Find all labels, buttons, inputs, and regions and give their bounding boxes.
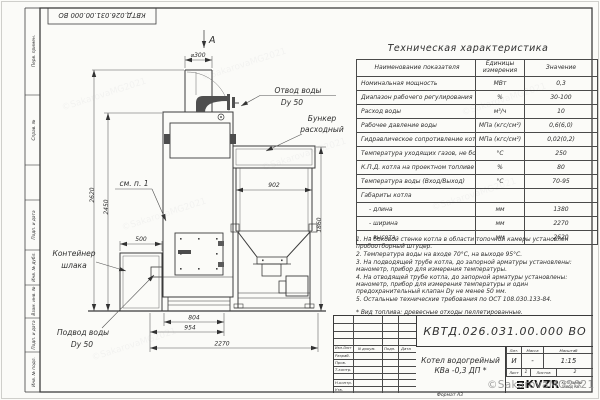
col-izm-list: Изм.Лист [335,347,352,350]
dim-954: 954 [184,325,196,332]
grid-line [334,331,416,332]
strip-label: Взам. инв. № [31,286,37,316]
spec-unit [476,189,525,203]
spec-value: 10 [525,105,598,119]
spec-name: - длина [357,203,476,217]
dim-1860: 1860 [316,217,323,232]
product-name-line2: КВа -0,3 ДП * [416,366,505,376]
spec-value: 2270 [525,217,598,231]
row-prov: Пров. [335,361,346,365]
header-value: Значение [525,60,598,77]
mass-header: Масса [521,347,543,354]
table-row: Расход водым³/ч10 [357,105,598,119]
label-hopper: Бункер [308,114,337,123]
spec-unit: МВт [476,77,525,91]
lit-header: Лит. [506,347,521,354]
spec-unit: % [476,161,525,175]
spec-unit: мм [476,217,525,231]
view-a-marker: A [204,30,216,48]
sheets-value: 2 [556,369,593,377]
note-line: 5. Остальные технические требования по О… [356,297,586,304]
spec-unit: МПа (кгс/см²) [476,119,525,133]
label-slag: Контейнер [53,249,96,258]
label-slag-2: шлака [61,261,87,270]
strip-label: Подп. и дата [31,210,37,240]
table-row: - длинамм1380 [357,203,598,217]
dim-chimney-dia: ⌀300 [190,52,205,59]
header-name: Наименование показателя [357,60,476,77]
spec-name: Температура уходящих газов, не более [357,147,476,161]
label-water-inlet-dn: Dу 50 [71,340,93,349]
dim-2450: 2450 [103,199,110,214]
table-row: Температура уходящих газов, не более°С25… [357,147,598,161]
table-row: Диапазон рабочего регулирования%30-100 [357,91,598,105]
lit-value: И [506,354,521,369]
dim-902: 902 [268,182,280,189]
bunker-outline [231,146,317,308]
boiler-outline [151,70,236,311]
spec-name: Диапазон рабочего регулирования [357,91,476,105]
spec-unit: МПа (кгс/см²) [476,133,525,147]
spec-name: Рабочее давление воды [357,119,476,133]
dim-2270: 2270 [214,341,229,348]
row-razrab: Разраб. [335,354,350,358]
spec-name: - ширина [357,217,476,231]
row-utv: Утв. [335,388,343,392]
sheets-label: Листов [530,369,556,377]
view-a-label: A [208,35,216,46]
spec-value [525,189,598,203]
strip-label: Инв. № дубл. [31,252,37,281]
left-strip-labels: Перв. примен. Справ. № Подп. и дата Инв.… [31,35,37,387]
product-name-line1: Котел водогрейный [416,356,505,366]
strip-label: Справ. № [31,119,37,140]
spec-value: 1380 [525,203,598,217]
scale-header: Масштаб [543,347,593,354]
col-data: Дата [401,347,411,351]
spec-name: Габариты котла [357,189,476,203]
grid-line [334,338,416,339]
note-line: 2. Температура воды на входе 70°С, на вы… [356,252,586,259]
grid-line [334,386,416,387]
spec-value: 80 [525,161,598,175]
row-tkontr: Т.контр. [335,368,351,372]
label-water-inlet: Подвод воды [57,328,109,337]
grid-line [382,316,383,393]
drawing-designation: КВТД.026.031.00.000 ВО [416,316,593,347]
header-units: Единицы измерения [476,60,525,77]
leader-labels: Отвод воды Dу 50 Бункер расходный см. п.… [53,86,344,349]
spec-value: 0,6(6,0) [525,119,598,133]
scale-value: 1:15 [543,354,593,369]
tech-table-title: Техническая характеристика [356,43,580,54]
col-podp: Подп. [384,347,396,351]
format-label: Формат А3 [410,393,490,398]
spec-name: Номинальная мощность [357,77,476,91]
spec-value: 0,02(0,2) [525,133,598,147]
table-row: Габариты котла [357,189,598,203]
water-outlet-nozzle [196,94,239,112]
strip-label: Подп. и дата [31,320,37,350]
spec-unit: % [476,91,525,105]
col-dokum: N докум. [358,347,376,351]
row-nkontr: Н.контр. [335,381,352,385]
spec-name: Температура воды (Вход/Выход) [357,175,476,189]
top-stamp-designation: КВТД.026.031.00.000 ВО [58,11,146,19]
table-row: Номинальная мощностьМВт0,3 [357,77,598,91]
spec-name: Расход воды [357,105,476,119]
spec-value: 0,3 [525,77,598,91]
dim-500: 500 [135,236,147,243]
spec-unit: мм [476,203,525,217]
spec-name: К.П.Д. котла на проектном топливе [357,161,476,175]
grid-line [334,323,416,324]
label-water-outlet: Отвод воды [275,86,322,95]
sheet-value: 1 [521,369,530,377]
table-row: К.П.Д. котла на проектном топливе%80 [357,161,598,175]
technical-notes: 1. На боковой стенке котла в области топ… [356,237,586,318]
note-line: 3. На подводящей трубе котла, до запорно… [356,260,586,274]
table-header-row: Наименование показателя Единицы измерени… [357,60,598,77]
table-row: - ширинамм2270 [357,217,598,231]
table-row: Гидравлическое сопротивление котлаМПа (к… [357,133,598,147]
spec-unit: м³/ч [476,105,525,119]
strip-label: Инв. № подл. [31,357,37,387]
spec-value: 250 [525,147,598,161]
grid-line [334,373,416,374]
spec-unit: °С [476,175,525,189]
spec-value: 30-100 [525,91,598,105]
mass-value: - [521,354,543,369]
grid-line [334,359,416,360]
label-water-outlet-dn: Dу 50 [281,98,303,107]
grid-line [398,316,399,393]
label-see-note: см. п. 1 [120,179,149,188]
note-line: 4. На отводящей трубе котла, до запорной… [356,275,586,296]
spec-unit: °С [476,147,525,161]
drawing-sheet: ©SakarovaMG2021 ©SakarovaMG2021 ©Sakarov… [0,0,600,400]
spec-name: Гидравлическое сопротивление котла [357,133,476,147]
strip-label: Перв. примен. [31,35,37,67]
tech-table: Наименование показателя Единицы измерени… [356,59,598,245]
grid-line [353,316,354,393]
table-row: Температура воды (Вход/Выход)°С70-95 [357,175,598,189]
spec-value: 70-95 [525,175,598,189]
dim-2620: 2620 [89,187,96,202]
label-hopper-2: расходный [299,125,344,134]
note-line: 1. На боковой стенке котла в области топ… [356,237,586,251]
sheet-label: Лист [506,369,521,377]
dim-804: 804 [188,315,200,322]
slag-container-outline [120,253,162,311]
watermark: ©SakarovaMG2021 [487,379,595,391]
table-row: Рабочее давление водыМПа (кгс/см²)0,6(6,… [357,119,598,133]
